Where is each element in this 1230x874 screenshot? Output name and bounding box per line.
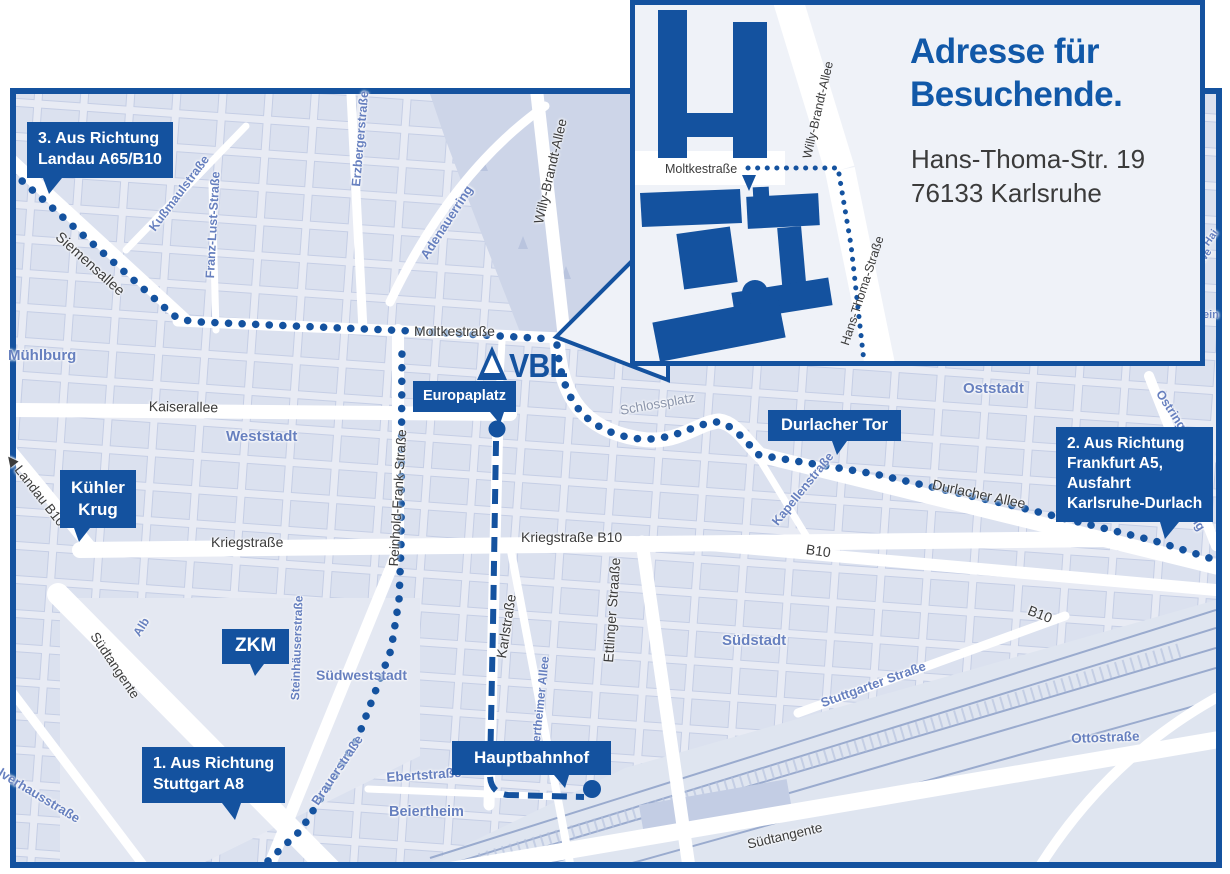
callout-zkm: ZKM [222, 629, 289, 664]
callout-from-landau: 3. Aus Richtung Landau A65/B10 [27, 122, 173, 178]
callout-from-stuttgart: 1. Aus Richtung Stuttgart A8 [142, 747, 285, 803]
callout-kuehler-krug: Kühler Krug [60, 470, 136, 528]
district-label-muehlburg: Mühlburg [8, 348, 76, 363]
street-label-kriegstrasse-b10: Kriegstraße B10 [521, 530, 622, 544]
district-label-suedweststadt: Südweststadt [316, 668, 407, 682]
street-label-edge-partial-ein: ein [1203, 310, 1219, 321]
district-label-weststadt: Weststadt [226, 429, 297, 444]
address-inset-panel: Moltkestraße Willy-Brandt-Allee Hans-Tho… [630, 0, 1205, 366]
street-label-kaiserallee: Kaiserallee [149, 399, 218, 414]
street-label-steinhaeuserstrasse: Steinhäuserstraße [289, 595, 305, 700]
street-label-kriegstrasse: Kriegstraße [211, 535, 283, 549]
callout-hauptbahnhof: Hauptbahnhof [452, 741, 611, 775]
street-label-ottostrasse: Ottostraße [1071, 730, 1140, 746]
vbl-directions-map: Siemensallee Kußmaulstraße Franz-Lust-St… [0, 0, 1230, 874]
district-label-suedstadt: Südstadt [722, 633, 786, 648]
street-label-b10-mid: B10 [805, 542, 832, 559]
vbl-triangle-icon [475, 342, 509, 380]
callout-durlacher-tor: Durlacher Tor [768, 410, 901, 441]
inset-title: Adresse für Besuchende. [910, 31, 1122, 116]
inset-address: Hans-Thoma-Str. 19 76133 Karlsruhe [911, 143, 1145, 211]
inset-street-label-moltkestrasse: Moltkestraße [665, 163, 737, 176]
district-label-oststadt: Oststadt [963, 381, 1024, 396]
street-label-moltkestrasse: Moltkestraße [414, 324, 495, 338]
callout-from-frankfurt: 2. Aus Richtung Frankfurt A5, Ausfahrt K… [1056, 427, 1213, 522]
hauptbahnhof-marker-dot [583, 780, 601, 798]
district-label-beiertheim: Beiertheim [389, 805, 464, 820]
callout-europaplatz: Europaplatz [413, 381, 516, 412]
